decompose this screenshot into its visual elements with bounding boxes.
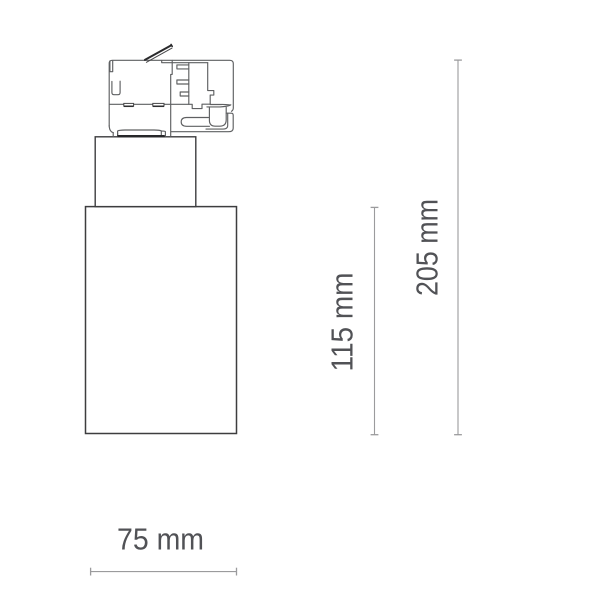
svg-text:75 mm: 75 mm: [117, 522, 204, 557]
svg-text:205 mm: 205 mm: [410, 199, 445, 296]
svg-text:115 mm: 115 mm: [325, 273, 360, 372]
